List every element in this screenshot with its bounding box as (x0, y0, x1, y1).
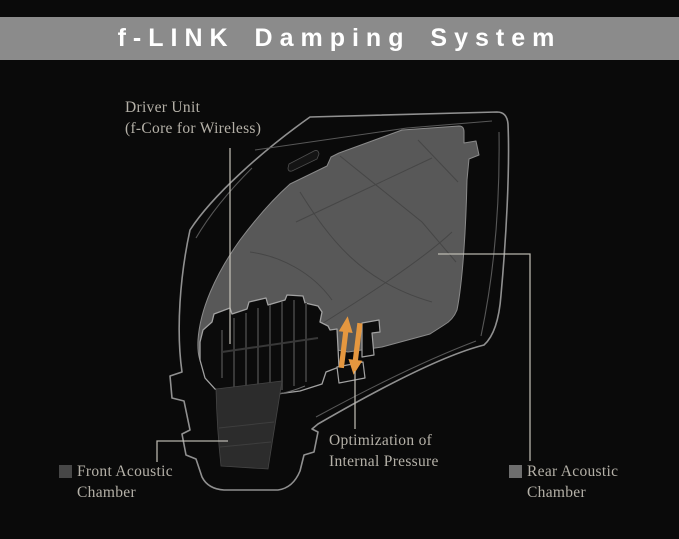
label-optimization-line1: Optimization of (329, 430, 439, 451)
front-chamber-swatch-icon (59, 465, 72, 478)
front-acoustic-chamber-region (216, 381, 282, 469)
label-front-chamber-line1: Front Acoustic (77, 461, 173, 482)
label-driver-unit-line1: Driver Unit (125, 97, 261, 118)
rear-chamber-swatch-icon (509, 465, 522, 478)
label-rear-chamber-line2: Chamber (527, 482, 618, 503)
label-optimization-line2: Internal Pressure (329, 451, 439, 472)
shell-vent-detail (288, 150, 319, 171)
label-rear-chamber: Rear Acoustic Chamber (527, 461, 618, 503)
front-chamber-swatch-rect (59, 465, 72, 478)
label-rear-chamber-line1: Rear Acoustic (527, 461, 618, 482)
label-driver-unit-line2: (f-Core for Wireless) (125, 118, 261, 139)
leader-front-chamber (157, 441, 228, 462)
label-front-chamber: Front Acoustic Chamber (77, 461, 173, 503)
label-front-chamber-line2: Chamber (77, 482, 173, 503)
label-driver-unit: Driver Unit (f-Core for Wireless) (125, 97, 261, 139)
label-optimization: Optimization of Internal Pressure (329, 430, 439, 472)
rear-chamber-swatch-rect (509, 465, 522, 478)
page: { "header": { "title": "f-LINK Damping S… (0, 0, 679, 539)
